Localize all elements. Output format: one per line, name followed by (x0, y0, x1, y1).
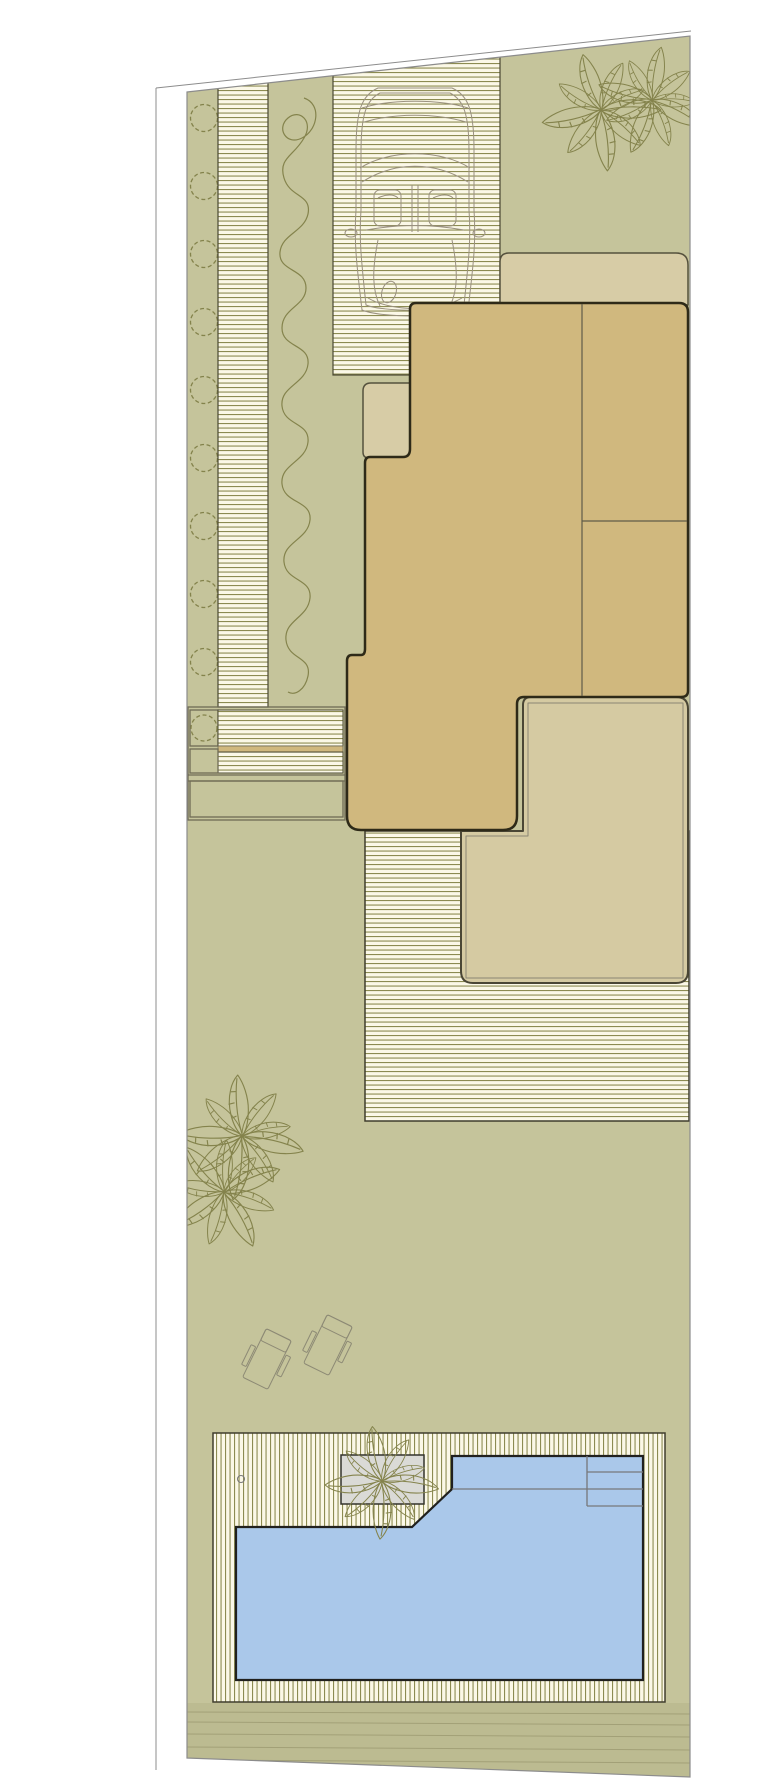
site-plan-svg (0, 0, 772, 1784)
building-roof-band (500, 253, 688, 305)
site-plan-page (0, 0, 772, 1784)
walkway-deck (218, 50, 268, 707)
